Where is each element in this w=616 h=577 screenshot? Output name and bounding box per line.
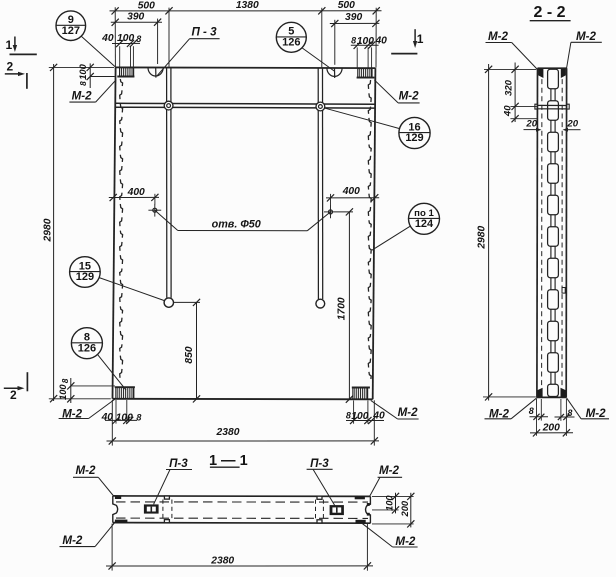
svg-text:1700: 1700	[336, 297, 347, 320]
svg-text:500: 500	[138, 0, 155, 11]
svg-text:8: 8	[567, 408, 572, 418]
svg-text:100: 100	[385, 495, 395, 511]
svg-text:390: 390	[345, 12, 362, 23]
svg-text:8: 8	[351, 36, 356, 46]
svg-text:8: 8	[136, 34, 141, 44]
svg-text:200: 200	[542, 422, 560, 433]
svg-text:М-2: М-2	[72, 89, 93, 102]
svg-text:850: 850	[184, 346, 195, 363]
svg-text:1380: 1380	[236, 0, 259, 11]
svg-text:1: 1	[6, 38, 13, 52]
svg-text:124: 124	[415, 218, 434, 230]
svg-text:40: 40	[374, 36, 387, 47]
svg-text:8: 8	[136, 412, 141, 422]
svg-text:М-2: М-2	[576, 30, 597, 43]
svg-text:П - 3: П - 3	[191, 26, 217, 39]
svg-text:126: 126	[78, 342, 96, 354]
svg-text:100: 100	[117, 33, 134, 44]
svg-text:1: 1	[417, 32, 424, 46]
svg-text:8: 8	[61, 378, 70, 383]
svg-text:2980: 2980	[43, 218, 54, 242]
svg-text:М-2: М-2	[379, 464, 400, 477]
svg-text:М-2: М-2	[62, 534, 83, 547]
svg-text:400: 400	[342, 186, 360, 197]
svg-text:2: 2	[7, 59, 14, 73]
svg-text:40: 40	[372, 411, 385, 422]
svg-text:100: 100	[357, 36, 374, 47]
svg-text:М-2: М-2	[399, 90, 420, 103]
svg-text:100: 100	[58, 384, 68, 400]
svg-text:390: 390	[127, 12, 144, 23]
svg-text:2380: 2380	[216, 427, 240, 438]
svg-text:40: 40	[503, 105, 514, 117]
svg-text:2: 2	[10, 388, 17, 402]
svg-text:8: 8	[529, 406, 534, 416]
svg-text:100: 100	[78, 63, 88, 79]
svg-text:20: 20	[566, 119, 578, 130]
svg-text:П-3: П-3	[310, 457, 329, 470]
svg-text:М-2: М-2	[586, 407, 607, 420]
svg-text:320: 320	[504, 79, 515, 96]
svg-text:129: 129	[76, 271, 94, 283]
svg-text:2380: 2380	[210, 555, 234, 566]
svg-text:М-2: М-2	[395, 535, 416, 548]
svg-text:500: 500	[338, 0, 355, 11]
svg-text:8: 8	[79, 81, 88, 86]
svg-text:400: 400	[127, 187, 145, 198]
svg-text:8: 8	[346, 410, 351, 420]
svg-text:126: 126	[282, 37, 300, 49]
svg-text:П-3: П-3	[169, 457, 188, 470]
svg-text:200: 200	[400, 500, 410, 517]
svg-text:2 - 2: 2 - 2	[533, 4, 565, 21]
svg-text:100: 100	[116, 413, 133, 424]
svg-text:127: 127	[62, 25, 80, 37]
svg-text:М-2: М-2	[76, 464, 97, 477]
svg-text:20: 20	[525, 118, 537, 129]
svg-text:40: 40	[101, 412, 114, 423]
svg-text:М-2: М-2	[488, 30, 509, 43]
svg-text:40: 40	[101, 33, 114, 44]
svg-text:отв. Ф50: отв. Ф50	[212, 218, 261, 230]
svg-text:129: 129	[405, 132, 423, 144]
svg-text:100: 100	[351, 411, 368, 422]
svg-text:2980: 2980	[477, 225, 488, 249]
svg-text:М-2: М-2	[398, 406, 419, 419]
